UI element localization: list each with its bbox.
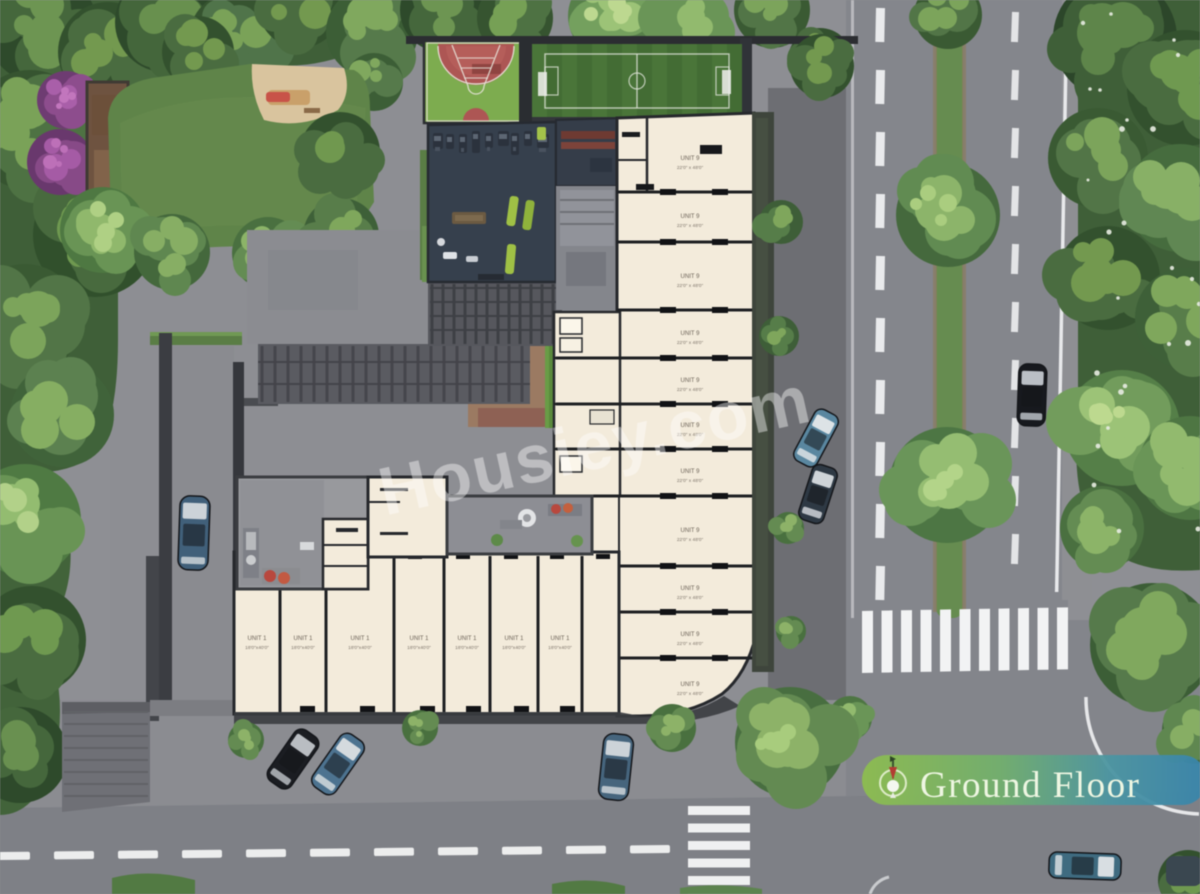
svg-text:18'0"x40'0": 18'0"x40'0" <box>548 645 572 651</box>
svg-text:22'0" x 48'0": 22'0" x 48'0" <box>677 691 704 697</box>
svg-text:UNIT 1: UNIT 1 <box>505 636 525 642</box>
svg-text:22'0" x 48'0": 22'0" x 48'0" <box>677 283 704 289</box>
svg-text:18'0"x40'0": 18'0"x40'0" <box>407 645 431 651</box>
svg-text:UNIT 9: UNIT 9 <box>681 682 701 688</box>
svg-text:22'0" x 48'0": 22'0" x 48'0" <box>677 478 704 484</box>
svg-text:22'0" x 48'0": 22'0" x 48'0" <box>677 641 704 647</box>
svg-text:UNIT 1: UNIT 1 <box>294 636 314 642</box>
svg-text:UNIT 9: UNIT 9 <box>681 274 701 280</box>
svg-text:UNIT 1: UNIT 1 <box>551 636 571 642</box>
svg-text:22'0" x 48'0": 22'0" x 48'0" <box>677 223 704 229</box>
svg-text:UNIT 1: UNIT 1 <box>458 636 478 642</box>
svg-text:22'0" x 48'0": 22'0" x 48'0" <box>677 340 704 346</box>
svg-text:18'0"x40'0": 18'0"x40'0" <box>455 645 479 651</box>
svg-text:22'0" x 48'0": 22'0" x 48'0" <box>677 595 704 601</box>
svg-text:UNIT 1: UNIT 1 <box>410 636 430 642</box>
svg-text:18'0"x40'0": 18'0"x40'0" <box>348 645 372 651</box>
svg-text:22'0" x 48'0": 22'0" x 48'0" <box>677 537 704 543</box>
svg-text:UNIT 9: UNIT 9 <box>681 214 701 220</box>
svg-text:UNIT 9: UNIT 9 <box>681 156 701 162</box>
svg-text:Ground Floor: Ground Floor <box>920 765 1140 806</box>
svg-text:UNIT 1: UNIT 1 <box>248 636 268 642</box>
svg-text:18'0"x40'0": 18'0"x40'0" <box>502 645 526 651</box>
svg-text:18'0"x40'0": 18'0"x40'0" <box>291 645 315 651</box>
svg-text:UNIT 9: UNIT 9 <box>681 331 701 337</box>
svg-text:UNIT 1: UNIT 1 <box>351 636 371 642</box>
svg-text:UNIT 9: UNIT 9 <box>681 469 701 475</box>
svg-text:22'0" x 48'0": 22'0" x 48'0" <box>677 165 704 171</box>
svg-text:UNIT 9: UNIT 9 <box>681 528 701 534</box>
svg-text:UNIT 9: UNIT 9 <box>681 632 701 638</box>
svg-text:18'0"x40'0": 18'0"x40'0" <box>245 645 269 651</box>
svg-text:UNIT 9: UNIT 9 <box>681 586 701 592</box>
